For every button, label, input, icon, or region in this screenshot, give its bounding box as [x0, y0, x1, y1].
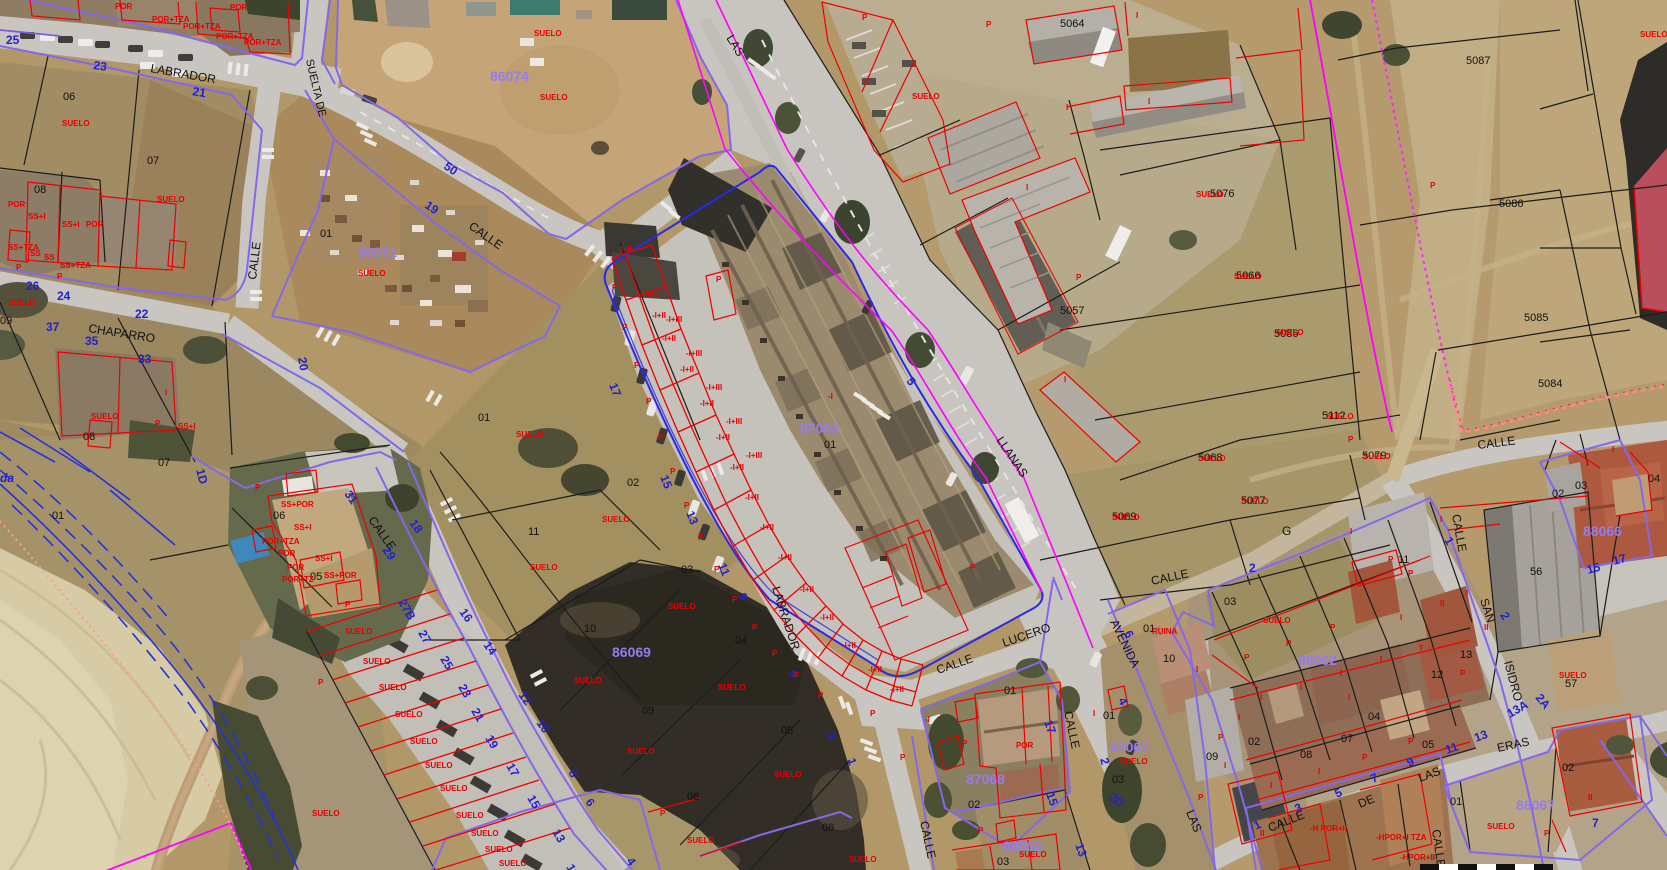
- svg-text:-I+II: -I+II: [618, 245, 632, 254]
- svg-text:II: II: [1484, 623, 1488, 632]
- svg-text:G: G: [1282, 524, 1291, 538]
- svg-text:SUELO: SUELO: [425, 761, 453, 770]
- svg-text:-I: -I: [828, 392, 833, 401]
- svg-text:-I+II: -I+II: [778, 553, 792, 562]
- svg-text:86069: 86069: [612, 644, 651, 660]
- svg-text:POR+TZA: POR+TZA: [244, 38, 282, 47]
- svg-text:P: P: [1362, 753, 1368, 762]
- svg-text:SUELO: SUELO: [1559, 671, 1587, 680]
- svg-text:-I+III: -I+III: [706, 383, 722, 392]
- svg-text:I: I: [1224, 761, 1226, 770]
- svg-text:P: P: [970, 563, 976, 572]
- svg-text:-I+II: -I+II: [700, 399, 714, 408]
- svg-text:POR: POR: [1016, 741, 1034, 750]
- svg-text:I: I: [1066, 103, 1068, 112]
- svg-text:P: P: [1408, 737, 1414, 746]
- svg-text:I: I: [165, 388, 167, 397]
- svg-text:SUELO: SUELO: [1019, 850, 1047, 859]
- svg-text:87067: 87067: [1110, 739, 1149, 755]
- svg-text:I: I: [1612, 445, 1614, 454]
- svg-text:RUINA: RUINA: [1152, 627, 1178, 636]
- svg-text:I: I: [1238, 713, 1240, 722]
- svg-text:SUELO: SUELO: [540, 93, 568, 102]
- svg-text:23: 23: [93, 58, 108, 74]
- svg-text:07: 07: [147, 155, 159, 167]
- svg-text:5084: 5084: [1538, 378, 1562, 390]
- svg-text:06: 06: [822, 822, 834, 834]
- svg-text:SUELO: SUELO: [687, 836, 715, 845]
- svg-text:SUELO: SUELO: [574, 676, 602, 685]
- svg-text:01: 01: [320, 228, 332, 240]
- svg-text:P: P: [1076, 273, 1082, 282]
- svg-text:2: 2: [1249, 561, 1256, 575]
- svg-text:POR: POR: [230, 3, 248, 12]
- svg-text:SUELO: SUELO: [345, 627, 373, 636]
- svg-text:-I+II: -I+II: [730, 463, 744, 472]
- svg-text:I: I: [1420, 643, 1422, 652]
- svg-text:26: 26: [26, 279, 40, 293]
- svg-text:12: 12: [1431, 669, 1443, 681]
- svg-text:SUELO: SUELO: [312, 809, 340, 818]
- svg-text:P: P: [978, 826, 984, 835]
- svg-text:20: 20: [295, 356, 311, 372]
- svg-text:POR: POR: [287, 563, 305, 572]
- svg-text:P: P: [57, 272, 63, 281]
- svg-text:I: I: [1136, 11, 1138, 20]
- svg-text:I: I: [1380, 655, 1382, 664]
- svg-text:37: 37: [46, 320, 60, 334]
- svg-text:SUELO: SUELO: [499, 859, 527, 868]
- svg-text:P: P: [658, 433, 664, 442]
- svg-text:02: 02: [627, 477, 639, 489]
- svg-text:-I+III: -I+III: [726, 417, 742, 426]
- svg-text:SUELO: SUELO: [602, 515, 630, 524]
- svg-text:5086: 5086: [1499, 198, 1523, 210]
- svg-text:P: P: [870, 709, 876, 718]
- svg-text:02: 02: [1248, 736, 1260, 748]
- svg-text:5087: 5087: [1466, 55, 1490, 67]
- svg-text:08: 08: [687, 791, 699, 803]
- svg-text:-HPOR+I TZA: -HPOR+I TZA: [1376, 833, 1427, 842]
- svg-text:P: P: [732, 595, 738, 604]
- svg-text:P: P: [1330, 623, 1336, 632]
- svg-text:5057: 5057: [1060, 305, 1084, 317]
- svg-text:P: P: [1430, 181, 1436, 190]
- svg-text:SS+I: SS+I: [294, 523, 312, 532]
- svg-text:I: I: [1064, 375, 1066, 384]
- svg-text:P: P: [1408, 569, 1414, 578]
- svg-text:25: 25: [6, 33, 20, 47]
- svg-text:SUELO: SUELO: [849, 855, 877, 864]
- svg-text:SUELO: SUELO: [1276, 328, 1304, 337]
- svg-text:87068: 87068: [966, 771, 1005, 787]
- svg-text:-I+II: -I+II: [716, 433, 730, 442]
- svg-text:05: 05: [781, 725, 793, 737]
- svg-text:SUELO: SUELO: [157, 195, 185, 204]
- svg-text:SUELO: SUELO: [1241, 497, 1269, 506]
- svg-text:POR: POR: [8, 200, 26, 209]
- svg-text:I: I: [1318, 767, 1320, 776]
- svg-text:I: I: [1586, 459, 1588, 468]
- svg-text:II: II: [1440, 599, 1444, 608]
- svg-text:33: 33: [138, 352, 152, 366]
- svg-text:-I+II: -I+II: [820, 613, 834, 622]
- svg-text:-I+II: -I+II: [652, 311, 666, 320]
- svg-text:SS+POR: SS+POR: [324, 571, 357, 580]
- svg-text:II: II: [1588, 793, 1592, 802]
- svg-text:SUELO: SUELO: [1363, 452, 1391, 461]
- svg-text:I: I: [1400, 613, 1402, 622]
- svg-text:-I+II: -I+II: [760, 523, 774, 532]
- svg-text:-I+III: -I+III: [666, 315, 682, 324]
- svg-text:SS+I: SS+I: [178, 422, 196, 431]
- svg-text:POR: POR: [115, 2, 133, 11]
- svg-text:SS+I: SS+I: [315, 554, 333, 563]
- svg-text:P: P: [622, 323, 628, 332]
- svg-text:P: P: [794, 671, 800, 680]
- svg-text:SUELO: SUELO: [62, 119, 90, 128]
- svg-text:P: P: [714, 565, 720, 574]
- svg-text:13: 13: [1460, 649, 1472, 661]
- svg-text:P: P: [900, 753, 906, 762]
- svg-text:06: 06: [273, 510, 285, 522]
- svg-text:P: P: [752, 623, 758, 632]
- svg-text:-HPOR+II: -HPOR+II: [1400, 853, 1435, 862]
- svg-text:SS+POR: SS+POR: [281, 500, 314, 509]
- svg-text:88066: 88066: [1583, 523, 1622, 539]
- svg-text:SUELO: SUELO: [363, 657, 391, 666]
- svg-text:09: 09: [0, 315, 12, 327]
- svg-text:21: 21: [191, 84, 207, 100]
- svg-text:03: 03: [1575, 480, 1587, 492]
- svg-text:POR+TZA: POR+TZA: [183, 22, 221, 31]
- svg-text:P: P: [1544, 829, 1550, 838]
- svg-text:P: P: [962, 739, 968, 748]
- svg-text:P: P: [818, 691, 824, 700]
- svg-text:da: da: [0, 471, 14, 485]
- svg-text:SUELO: SUELO: [485, 845, 513, 854]
- svg-text:SUELO: SUELO: [774, 770, 802, 779]
- svg-text:09: 09: [1206, 751, 1218, 763]
- svg-text:08: 08: [1300, 749, 1312, 761]
- svg-text:56: 56: [1530, 566, 1542, 578]
- svg-text:-I+II: -I+II: [868, 665, 882, 674]
- svg-text:SUELO: SUELO: [912, 92, 940, 101]
- svg-text:P: P: [670, 467, 676, 476]
- svg-text:P: P: [345, 600, 351, 609]
- svg-text:SUELO: SUELO: [91, 412, 119, 421]
- svg-text:01: 01: [1004, 685, 1016, 697]
- svg-text:-H POR+II: -H POR+II: [1310, 824, 1347, 833]
- svg-text:SUELO: SUELO: [471, 829, 499, 838]
- svg-text:-I+II: -I+II: [662, 334, 676, 343]
- svg-text:04: 04: [735, 635, 747, 647]
- svg-text:I: I: [1466, 589, 1468, 598]
- svg-text:03: 03: [1112, 774, 1124, 786]
- svg-text:P: P: [698, 533, 704, 542]
- svg-text:P: P: [1218, 733, 1224, 742]
- svg-text:SUELO: SUELO: [530, 563, 558, 572]
- svg-text:86071: 86071: [358, 244, 397, 260]
- svg-text:SS+I: SS+I: [28, 212, 46, 221]
- svg-text:-I+II: -I+II: [680, 365, 694, 374]
- svg-text:08: 08: [34, 184, 46, 196]
- svg-text:P: P: [255, 483, 261, 492]
- svg-text:SUELO: SUELO: [1326, 412, 1354, 421]
- svg-text:I: I: [1260, 693, 1262, 702]
- svg-text:-I+II: -I+II: [745, 493, 759, 502]
- svg-text:P: P: [660, 809, 666, 818]
- svg-text:SUELO: SUELO: [1640, 30, 1667, 39]
- svg-text:I: I: [1300, 683, 1302, 692]
- svg-text:07: 07: [1341, 733, 1353, 745]
- svg-text:01: 01: [824, 439, 836, 451]
- svg-text:SS: SS: [44, 253, 55, 262]
- svg-text:P: P: [1286, 639, 1292, 648]
- svg-text:-I+II: -I+II: [800, 585, 814, 594]
- svg-text:P: P: [716, 275, 722, 284]
- svg-text:04: 04: [1368, 711, 1380, 723]
- svg-text:P: P: [1460, 669, 1466, 678]
- svg-text:POR: POR: [278, 549, 296, 558]
- svg-text:88067: 88067: [1516, 797, 1555, 813]
- svg-text:03: 03: [681, 564, 693, 576]
- svg-text:88062: 88062: [1298, 652, 1337, 668]
- svg-text:-I+II: -I+II: [890, 685, 904, 694]
- svg-text:P: P: [1388, 555, 1394, 564]
- svg-text:SUELO: SUELO: [395, 710, 423, 719]
- svg-text:10: 10: [584, 623, 596, 635]
- svg-text:P: P: [986, 20, 992, 29]
- svg-text:P: P: [634, 361, 640, 370]
- svg-text:SS+I: SS+I: [62, 220, 80, 229]
- svg-text:SUELO: SUELO: [718, 683, 746, 692]
- svg-text:03: 03: [1224, 596, 1236, 608]
- svg-text:I: I: [1340, 669, 1342, 678]
- svg-text:I: I: [1196, 665, 1198, 674]
- svg-text:10: 10: [1163, 653, 1175, 665]
- svg-text:POR+TZA: POR+TZA: [262, 537, 300, 546]
- svg-text:P: P: [1348, 435, 1354, 444]
- svg-text:04: 04: [1648, 473, 1660, 485]
- svg-text:SUELO: SUELO: [379, 683, 407, 692]
- svg-text:35: 35: [85, 334, 99, 348]
- svg-text:SUELO: SUELO: [534, 29, 562, 38]
- svg-text:SUELO: SUELO: [516, 430, 544, 439]
- svg-text:02: 02: [1562, 762, 1574, 774]
- svg-text:SUELO: SUELO: [440, 784, 468, 793]
- svg-text:5064: 5064: [1060, 18, 1084, 30]
- svg-text:05: 05: [1422, 739, 1434, 751]
- svg-text:-I+II: -I+II: [842, 641, 856, 650]
- svg-text:I: I: [1348, 693, 1350, 702]
- svg-text:01: 01: [1450, 796, 1462, 808]
- svg-text:01: 01: [478, 412, 490, 424]
- svg-text:08: 08: [83, 431, 95, 443]
- svg-text:-I+III: -I+III: [686, 349, 702, 358]
- svg-text:I: I: [1270, 781, 1272, 790]
- svg-text:P: P: [16, 263, 22, 272]
- svg-text:87063: 87063: [800, 420, 839, 436]
- svg-text:5085: 5085: [1524, 312, 1548, 324]
- svg-text:P: P: [1198, 793, 1204, 802]
- svg-text:11: 11: [528, 526, 539, 538]
- svg-text:I: I: [1440, 515, 1442, 524]
- svg-text:SS+TZA: SS+TZA: [60, 261, 91, 270]
- svg-text:01: 01: [1103, 710, 1115, 722]
- svg-text:-I+II: -I+II: [645, 290, 659, 299]
- svg-text:SUELO: SUELO: [410, 737, 438, 746]
- svg-text:02: 02: [968, 799, 980, 811]
- svg-text:SUELO: SUELO: [1112, 513, 1140, 522]
- svg-text:I: I: [1026, 183, 1028, 192]
- svg-text:SUELO: SUELO: [1120, 757, 1148, 766]
- svg-text:24: 24: [57, 289, 71, 303]
- svg-text:86074: 86074: [490, 68, 529, 84]
- svg-text:09: 09: [642, 705, 654, 717]
- svg-text:II: II: [1260, 829, 1264, 838]
- svg-text:SS: SS: [30, 249, 41, 258]
- svg-text:P: P: [772, 649, 778, 658]
- svg-text:POR: POR: [86, 220, 104, 229]
- svg-text:-I+III: -I+III: [746, 451, 762, 460]
- svg-text:SUELO: SUELO: [456, 811, 484, 820]
- svg-text:-I: -I: [925, 715, 930, 724]
- svg-text:SUELO: SUELO: [1196, 190, 1224, 199]
- svg-text:P: P: [684, 501, 690, 510]
- svg-text:P: P: [862, 13, 868, 22]
- svg-text:SUELO: SUELO: [1263, 616, 1291, 625]
- svg-text:SUELO: SUELO: [668, 602, 696, 611]
- svg-text:P: P: [318, 678, 324, 687]
- svg-text:SUELO: SUELO: [1198, 454, 1226, 463]
- svg-text:11: 11: [1398, 554, 1409, 566]
- svg-text:P: P: [646, 397, 652, 406]
- svg-text:SUELO: SUELO: [627, 747, 655, 756]
- svg-text:SUELO: SUELO: [1234, 272, 1262, 281]
- svg-text:P: P: [155, 419, 161, 428]
- svg-text:I: I: [1148, 97, 1150, 106]
- svg-text:I: I: [1350, 527, 1352, 536]
- svg-text:03: 03: [997, 856, 1009, 868]
- svg-text:22: 22: [135, 307, 149, 321]
- svg-text:SUELO: SUELO: [8, 298, 36, 307]
- svg-text:I: I: [1093, 709, 1095, 718]
- svg-text:02: 02: [1552, 488, 1564, 500]
- svg-text:07: 07: [158, 457, 170, 469]
- svg-text:SUELO: SUELO: [358, 269, 386, 278]
- svg-text:01: 01: [52, 510, 64, 522]
- svg-text:POR+TZ: POR+TZ: [282, 575, 314, 584]
- svg-text:P: P: [612, 283, 618, 292]
- svg-text:06: 06: [63, 91, 75, 103]
- svg-text:P: P: [1244, 653, 1250, 662]
- svg-text:SUELO: SUELO: [1487, 822, 1515, 831]
- svg-text:7: 7: [1592, 816, 1599, 830]
